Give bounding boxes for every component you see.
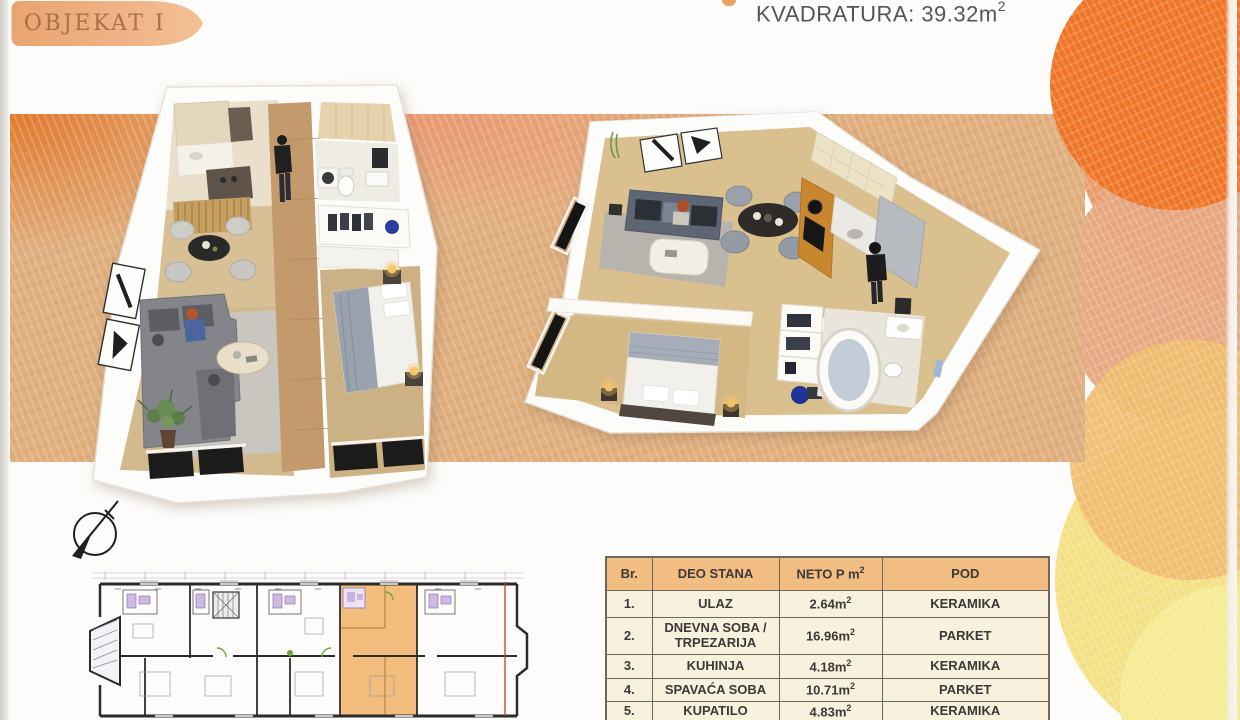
- area-sup: 2: [998, 0, 1006, 14]
- wardrobe: [318, 205, 410, 270]
- table-row: 3. KUHINJA 4.18m2 KERAMIKA: [606, 655, 1049, 679]
- objekat-badge: OBJEKAT I: [10, 0, 206, 47]
- top-logo-fragment: [722, 0, 736, 6]
- photo-edge-left: [0, 0, 10, 720]
- coffee-table: [217, 342, 269, 374]
- dimension-lines: [93, 571, 523, 580]
- table-row: 1. ULAZ 2.64m2 KERAMIKA: [606, 591, 1049, 618]
- table-row: 4. SPAVAĆA SOBA 10.71m2 PARKET: [606, 679, 1049, 702]
- header-num: Br.: [606, 557, 652, 591]
- header-neto: NETO P m2: [779, 557, 882, 591]
- header-part: DEO STANA: [652, 557, 779, 591]
- badge-label: OBJEKAT I: [10, 0, 180, 47]
- sofa: [140, 294, 240, 448]
- area-table: Br. DEO STANA NETO P m2 POD 1. ULAZ 2.64…: [605, 556, 1050, 720]
- stair-core: [213, 592, 239, 618]
- table-row: 5. KUPATILO 4.83m2 KERAMIKA: [606, 702, 1049, 720]
- area-label: KVADRATURA: 39.32m: [756, 1, 998, 26]
- page-title: KVADRATURA: 39.32m2: [756, 0, 1006, 27]
- brochure-page: OBJEKAT I KVADRATURA: 39.32m2: [0, 0, 1240, 720]
- floorplan-3d-left: [78, 80, 498, 505]
- header-floor: POD: [882, 557, 1049, 591]
- north-arrow-icon: [62, 495, 128, 565]
- table-row: 2. DNEVNA SOBA / TRPEZARIJA 16.96m2 PARK…: [606, 618, 1049, 655]
- floorplan-2d: [85, 568, 530, 720]
- photo-edge-right: [1226, 0, 1237, 720]
- floorplan-3d-right: [505, 108, 1050, 453]
- table-header-row: Br. DEO STANA NETO P m2 POD: [606, 557, 1049, 591]
